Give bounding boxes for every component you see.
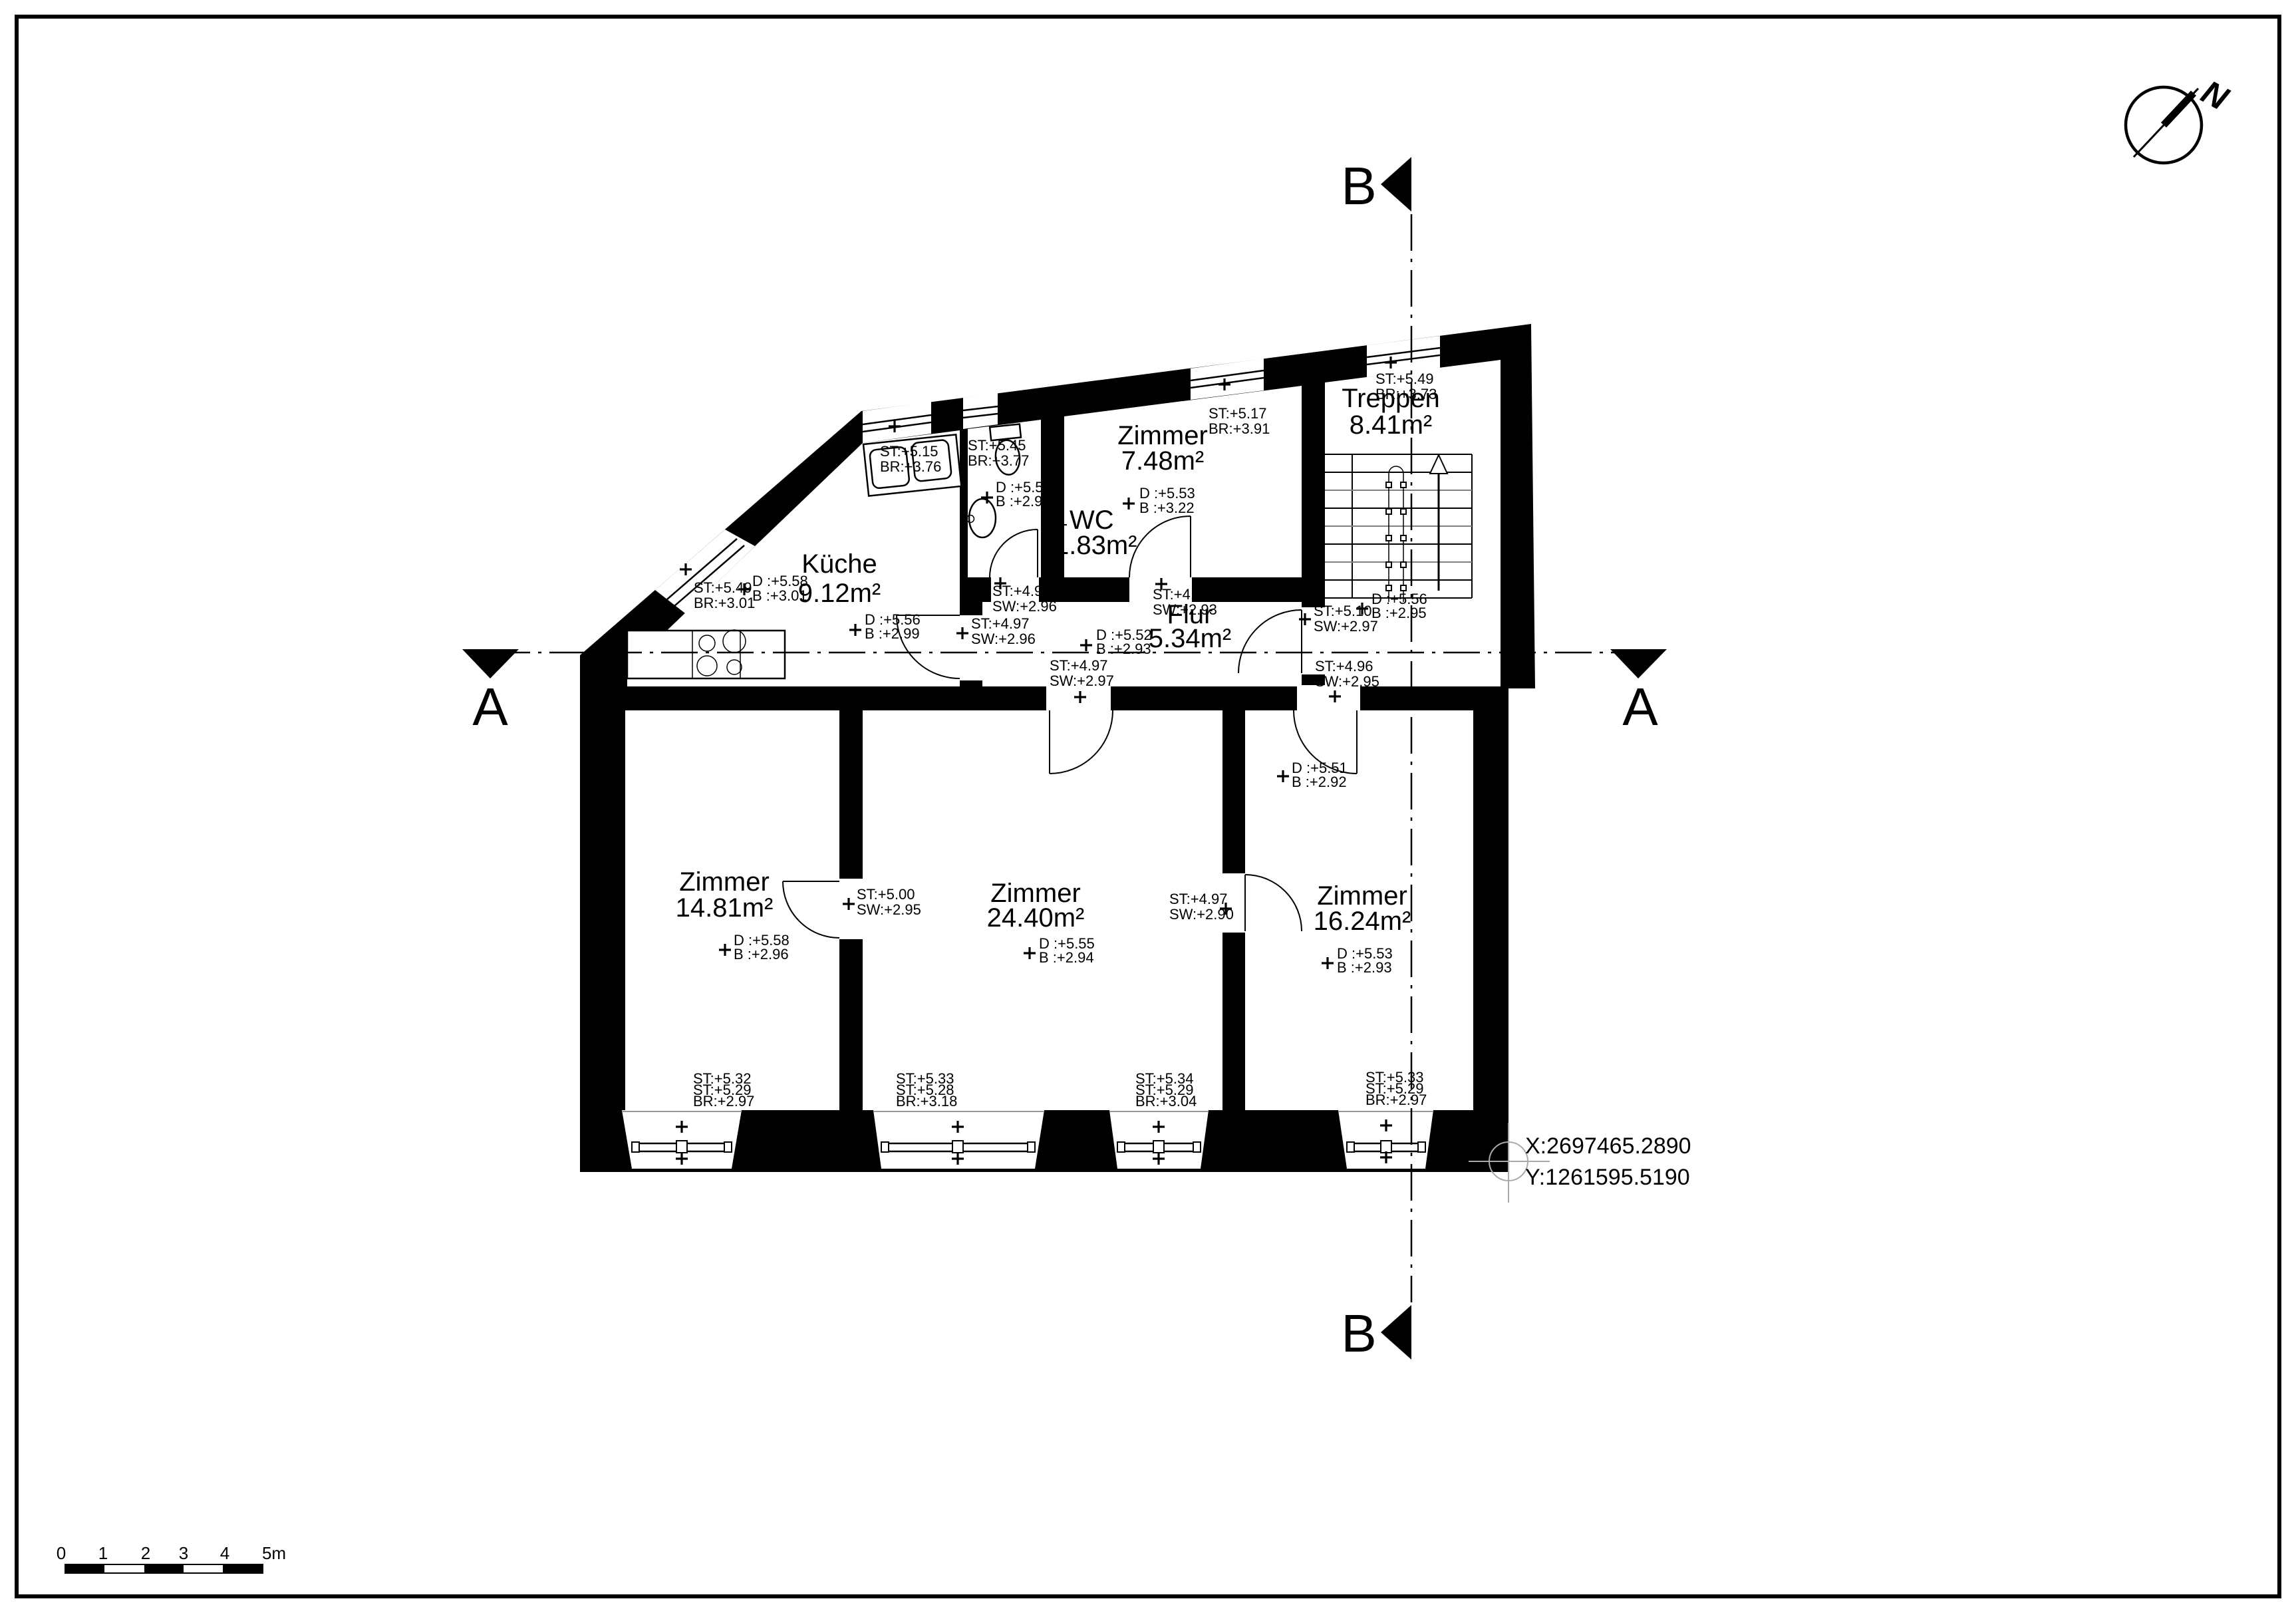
ann-treppen-window-l2: BR:+3.73 — [1375, 386, 1437, 402]
scale-tick-4: 4 — [220, 1543, 229, 1563]
ann-z1624-d551-l2: B :+2.92 — [1292, 774, 1347, 790]
ann-kueche-st-l1: ST:+4.96 — [992, 583, 1050, 599]
room-area-flur: 5.34m² — [1149, 624, 1232, 653]
room-area-kueche: 9.12m² — [798, 579, 881, 608]
ann-flur-st-l2: SW:+2.93 — [1153, 601, 1217, 618]
section-letter-b-top: B — [1341, 156, 1376, 216]
survey-coordinate-y: Y:1261595.5190 — [1525, 1165, 1690, 1190]
ann-window4-l3: BR:+2.97 — [1365, 1092, 1427, 1108]
room-area-zimmer1481: 14.81m² — [676, 893, 774, 923]
ann-kueche-st2-l2: SW:+2.96 — [971, 631, 1036, 647]
ann-z748-window-l1: ST:+5.17 — [1209, 405, 1266, 422]
ann-sink-window-l1: ST:+5.15 — [880, 443, 938, 460]
section-letter-b-bottom: B — [1341, 1304, 1376, 1363]
ann-kueche-st-l2: SW:+2.96 — [992, 598, 1057, 615]
ann-kueche-st2-l1: ST:+4.97 — [971, 615, 1029, 632]
ann-flur-d556-l2: B :+2.95 — [1371, 605, 1427, 621]
floor-plan-page: Küche 9.12m² WC 1.83m² Zimmer 7.48m² Tre… — [0, 0, 2296, 1613]
ann-wc-window-l1: ST:+5.45 — [968, 437, 1026, 454]
scale-tick-2: 2 — [141, 1543, 150, 1563]
room-area-zimmer748: 7.48m² — [1121, 446, 1205, 476]
ann-flur-d-l2: B :+2.93 — [1096, 641, 1151, 657]
room-name-zimmer1481: Zimmer — [679, 867, 770, 897]
section-letter-a-left: A — [472, 677, 508, 736]
ann-z748-window-l2: BR:+3.91 — [1209, 420, 1270, 437]
ann-z1624-d553-l2: B :+2.93 — [1337, 959, 1392, 976]
ann-z2440-st-l1: ST:+4.97 — [1169, 891, 1227, 907]
ann-z748-d-l2: B :+3.22 — [1139, 500, 1195, 516]
scale-tick-1: 1 — [98, 1543, 108, 1563]
ann-sink-window-l2: BR:+3.76 — [880, 458, 941, 475]
scale-tick-0: 0 — [57, 1543, 66, 1563]
scale-tick-3: 3 — [179, 1543, 188, 1563]
ann-nw-window-l2: BR:+3.01 — [694, 595, 755, 611]
ann-treppen-window-l1: ST:+5.49 — [1375, 370, 1433, 387]
ann-flur-st510-l1: ST:+5.10 — [1314, 603, 1371, 619]
kitchen-stove — [627, 630, 785, 678]
room-area-treppen: 8.41m² — [1350, 410, 1433, 440]
ann-window1-l3: BR:+2.97 — [693, 1093, 754, 1109]
ann-hall-st-left-l2: SW:+2.97 — [1050, 672, 1114, 689]
ann-wc-window-l2: BR:+3.77 — [968, 452, 1029, 469]
ann-nw-window-l1: ST:+5.49 — [694, 579, 752, 596]
ann-wc-basin-d-l2: B :+2.96 — [996, 493, 1051, 510]
room-area-wc: 1.83m² — [1054, 531, 1137, 560]
section-letter-a-right: A — [1622, 677, 1658, 736]
room-area-zimmer1624: 16.24m² — [1314, 907, 1411, 936]
ann-flur-st510-l2: SW:+2.97 — [1314, 618, 1378, 635]
scale-tick-5m: 5m — [262, 1543, 286, 1563]
ann-window2-l3: BR:+3.18 — [896, 1093, 957, 1109]
ann-z1481-d-l2: B :+2.96 — [734, 946, 789, 962]
ann-z1481-st-l1: ST:+5.00 — [857, 886, 915, 903]
ann-kueche-left-d-l2: B :+3.01 — [752, 587, 807, 604]
room-name-kueche: Küche — [801, 549, 877, 579]
ann-kueche-d-l2: B :+2.99 — [865, 625, 920, 642]
ann-hall-st-left-l1: ST:+4.97 — [1050, 657, 1107, 674]
ann-window3-l3: BR:+3.04 — [1135, 1093, 1197, 1109]
ann-z1481-st-l2: SW:+2.95 — [857, 901, 921, 918]
ann-flur-st-l1: ST:+4.96 — [1153, 586, 1211, 603]
room-area-zimmer2440: 24.40m² — [987, 903, 1085, 933]
ann-hall-st-right-l1: ST:+4.96 — [1315, 658, 1373, 674]
ann-z2440-d-l2: B :+2.94 — [1039, 949, 1094, 966]
ann-hall-st-right-l2: SW:+2.95 — [1315, 673, 1379, 690]
ann-z2440-st-l2: SW:+2.90 — [1169, 906, 1234, 923]
survey-coordinate-x: X:2697465.2890 — [1525, 1133, 1691, 1159]
floor-plan-drawing: Küche 9.12m² WC 1.83m² Zimmer 7.48m² Tre… — [0, 0, 2296, 1613]
